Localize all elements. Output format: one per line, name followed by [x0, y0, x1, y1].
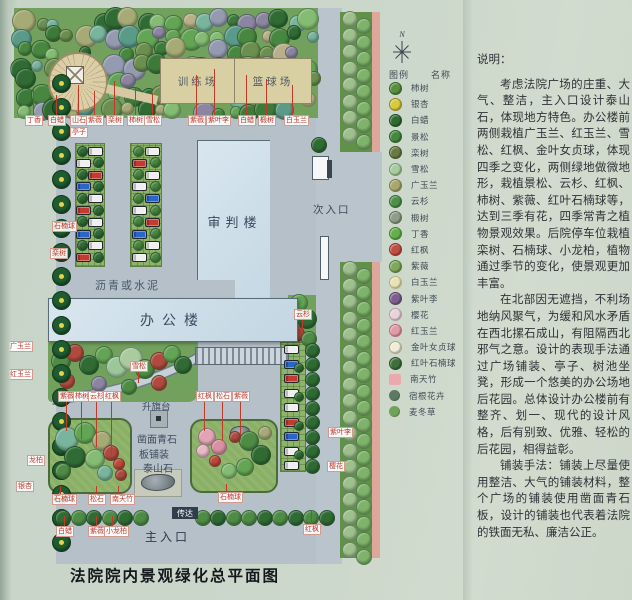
plant-callout: 银杏: [16, 481, 34, 492]
tree: [305, 444, 320, 459]
tree: [294, 392, 304, 402]
plant-callout: 南天竹: [110, 494, 135, 505]
plant-callout: 雪松: [130, 361, 148, 372]
callout-leader-line: [240, 401, 241, 435]
main-entrance-label: 主入口: [145, 528, 190, 545]
tree: [311, 137, 327, 153]
tree: [288, 510, 304, 526]
callout-leader-line: [302, 319, 303, 333]
legend-plant-icon: [389, 179, 402, 192]
tree: [194, 31, 210, 47]
flag-platform-label: 升旗台: [142, 399, 171, 413]
callout-leader-line: [311, 510, 312, 524]
parked-car: [284, 345, 299, 354]
tree: [356, 384, 372, 400]
tree: [150, 228, 161, 239]
tree: [236, 458, 254, 476]
callout-leader-line: [118, 486, 119, 494]
tree: [133, 240, 144, 251]
tree: [133, 216, 144, 227]
legend-plant-icon: [389, 114, 402, 127]
callout-leader-line: [81, 401, 82, 439]
callout-leader-line: [96, 516, 97, 526]
tree: [196, 444, 210, 458]
tree: [294, 421, 304, 431]
office-building-label: 办公楼: [140, 310, 206, 330]
plant-callout: 红枫: [103, 391, 121, 402]
legend-plant-icon: [389, 227, 402, 240]
north-arrow: N: [387, 30, 417, 70]
tree: [356, 367, 372, 383]
parked-car: [88, 241, 103, 250]
legend-plant-icon: [389, 98, 402, 111]
tree: [305, 357, 320, 372]
plant-callout: 柿树: [127, 115, 145, 126]
tree: [77, 216, 88, 227]
tree: [356, 318, 372, 334]
legend-plant-icon: [389, 390, 400, 401]
plant-callout: 松石: [88, 494, 106, 505]
parked-car: [284, 403, 299, 412]
legend-plant-icon: [389, 163, 402, 176]
tree: [258, 426, 272, 440]
legend-plant-name: 雪松: [411, 163, 429, 175]
plant-callout: 白蜡: [238, 115, 256, 126]
legend-plant-icon: [389, 357, 402, 370]
callout-leader-line: [196, 75, 197, 115]
tree: [356, 499, 372, 515]
plant-callout: 紫薇: [232, 391, 250, 402]
tree: [133, 193, 144, 204]
east-belt-edge-bottom: [372, 262, 380, 558]
north-label: N: [387, 30, 417, 39]
legend-plant-icon: [389, 130, 402, 143]
paving-note: 沥青或水泥: [95, 277, 160, 293]
tree: [102, 510, 118, 526]
tree: [356, 51, 372, 67]
tree: [257, 510, 273, 526]
parked-car: [88, 171, 103, 180]
description-paragraph-1: 考虑法院广场的庄重、大气、整洁，主入口设计泰山石，体现地方特色。办公楼前两侧栽植…: [477, 77, 630, 293]
legend-plant-icon: [389, 243, 402, 256]
plant-callout: 亭子: [70, 127, 88, 138]
parked-car: [284, 461, 299, 470]
callout-leader-line: [94, 91, 95, 115]
boundary-tree: [52, 267, 71, 286]
tree: [77, 193, 88, 204]
legend-plant-name: 银杏: [411, 98, 429, 110]
reception-box: 传达: [172, 507, 198, 519]
parked-car: [145, 218, 160, 227]
site-plan: 训练场 篮球场 审判楼 办公楼 传达 沥青或水泥 次入口 主入口 升旗台 凿面青…: [8, 8, 390, 564]
callout-leader-line: [138, 371, 139, 383]
training-ground: 训练场: [160, 58, 236, 104]
tree: [294, 363, 304, 373]
boundary-tree: [52, 146, 71, 165]
parked-car: [145, 194, 160, 203]
tree: [91, 376, 107, 392]
tree: [165, 37, 186, 58]
parked-car: [132, 206, 147, 215]
legend-plant-name: 宿根花卉: [409, 390, 445, 402]
legend-plant-icon: [389, 82, 402, 95]
legend-plant-name: 紫薇: [411, 260, 429, 272]
tree: [77, 169, 88, 180]
tree: [77, 146, 88, 157]
legend-plant-icon: [389, 211, 402, 224]
tree: [268, 9, 287, 28]
tree: [356, 134, 372, 150]
legend-plant-name: 樱花: [411, 309, 429, 321]
parked-car: [132, 182, 147, 191]
tree: [305, 386, 320, 401]
legend-plant-icon: [389, 195, 402, 208]
callout-leader-line: [56, 95, 57, 115]
compass-icon: [389, 39, 415, 65]
boundary-tree: [52, 364, 71, 383]
legend-plant-icon: [389, 406, 400, 417]
parked-car: [132, 230, 147, 239]
legend-plant-name: 丁香: [411, 228, 429, 240]
plant-callout: 樱花: [327, 461, 345, 472]
legend-plant-name: 白蜡: [411, 114, 429, 126]
tree: [151, 375, 167, 391]
flag-pole-base: [156, 416, 161, 421]
plant-callout: 白玉兰: [284, 115, 309, 126]
boundary-tree: [52, 74, 71, 93]
tree: [15, 68, 36, 89]
tree: [356, 268, 372, 284]
secondary-gate-pillar: [327, 160, 332, 178]
legend-plant-name: 广玉兰: [411, 179, 438, 191]
plaza-paving-label-2: 板铺装: [139, 446, 169, 461]
plant-callout: 龙柏: [27, 455, 45, 466]
callout-leader-line: [78, 85, 79, 115]
callout-leader-line: [135, 87, 136, 115]
callout-leader-line: [222, 401, 223, 441]
tree: [305, 459, 320, 474]
parked-car: [145, 147, 160, 156]
legend-plant-name: 柿树: [411, 82, 429, 94]
legend-plant-name: 云杉: [411, 195, 429, 207]
tree: [59, 29, 72, 42]
tree: [356, 101, 372, 117]
office-building: 办公楼: [48, 298, 298, 342]
reception-label: 传达: [177, 508, 193, 519]
tree: [133, 510, 149, 526]
parked-car: [76, 230, 91, 239]
callout-leader-line: [226, 484, 227, 492]
tree: [356, 84, 372, 100]
tree: [211, 439, 227, 455]
callout-leader-line: [33, 89, 34, 115]
tree: [305, 343, 320, 358]
plant-callout: 小龙柏: [104, 526, 129, 537]
parked-car: [76, 206, 91, 215]
plant-callout: 白蜡: [56, 526, 74, 537]
tree: [210, 510, 226, 526]
plant-callout: 红枫: [196, 391, 214, 402]
tree: [251, 445, 271, 465]
tree: [226, 510, 242, 526]
legend-plant-icon: [389, 292, 402, 305]
tree: [86, 510, 102, 526]
tree: [307, 31, 319, 43]
tree: [77, 240, 88, 251]
plant-callout: 云杉: [294, 309, 312, 320]
legend-plant-name: 白玉兰: [411, 276, 438, 288]
tree: [356, 334, 372, 350]
tree: [93, 252, 104, 263]
parked-car: [145, 241, 160, 250]
tree: [150, 205, 161, 216]
callout-leader-line: [246, 75, 247, 115]
parked-car: [132, 253, 147, 262]
callout-leader-line: [112, 516, 113, 526]
parked-car: [284, 374, 299, 383]
parked-car: [145, 171, 160, 180]
plant-callout: 石楠球: [52, 494, 77, 505]
parked-car: [284, 432, 299, 441]
tree: [209, 455, 221, 467]
legend-plant-icon: [389, 146, 402, 159]
tree: [55, 463, 71, 479]
description-panel: 说明： 考虑法院广场的庄重、大气、整洁，主入口设计泰山石，体现地方特色。办公楼前…: [477, 52, 630, 541]
boundary-tree: [52, 291, 71, 310]
plant-callout: 石楠球: [218, 492, 243, 503]
tree: [356, 466, 372, 482]
boundary-tree: [52, 316, 71, 335]
tree: [209, 8, 228, 27]
legend-plant-icon: [389, 276, 402, 289]
tree: [356, 417, 372, 433]
legend-plant-name: 紫叶李: [411, 293, 438, 305]
tree: [356, 35, 372, 51]
callout-leader-line: [214, 69, 215, 115]
tree: [356, 532, 372, 548]
parked-car: [76, 159, 91, 168]
tree: [55, 510, 71, 526]
east-road: [316, 8, 342, 564]
tree: [150, 252, 161, 263]
tree: [150, 181, 161, 192]
legend-plant-name: 红叶石楠球: [411, 357, 456, 369]
tree: [97, 465, 113, 481]
description-heading: 说明：: [477, 52, 630, 69]
tree: [133, 146, 144, 157]
tree: [305, 415, 320, 430]
plant-callout: 石楠球: [52, 221, 77, 232]
plant-callout: 雪松: [144, 115, 162, 126]
legend-plant-icon: [389, 341, 402, 354]
legend-plant-name: 栾树: [411, 147, 429, 159]
secondary-gate-barrier: [320, 236, 329, 280]
callout-leader-line: [114, 81, 115, 115]
tree: [305, 430, 320, 445]
tree: [93, 157, 104, 168]
plaza-paving-label-1: 凿面青石: [137, 431, 177, 446]
boundary-tree: [52, 340, 71, 359]
legend-plant-name: 红枫: [411, 244, 429, 256]
tree: [305, 401, 320, 416]
plant-callout: 紫薇: [188, 115, 206, 126]
trial-building-label: 审判楼: [207, 212, 261, 231]
legend-plant-name: 红玉兰: [411, 325, 438, 337]
tree: [356, 301, 372, 317]
callout-leader-line: [60, 486, 61, 494]
parked-car: [76, 253, 91, 262]
legend-plant-icon: [389, 374, 401, 385]
tree: [174, 356, 192, 374]
tree: [121, 102, 134, 115]
tree: [356, 351, 372, 367]
boundary-tree: [52, 98, 71, 117]
plant-callout: 白蜡: [48, 115, 66, 126]
plant-callout: 栾树: [50, 248, 68, 259]
tree: [133, 169, 144, 180]
tree: [305, 372, 320, 387]
plant-callout: 松石: [214, 391, 232, 402]
stone-label: 泰山石: [143, 460, 173, 475]
drawing-title: 法院院内景观绿化总平面图: [70, 564, 280, 586]
legend-plant-icon: [389, 260, 402, 273]
tree: [150, 157, 161, 168]
callout-leader-line: [96, 401, 97, 447]
legend-plant-icon: [389, 324, 402, 337]
tree: [356, 400, 372, 416]
plant-callout: 红枫: [303, 524, 321, 535]
description-paragraph-2: 在北部因无遮挡，不利场地纳风聚气，为缓和风水矛盾在西北摞石成山，有阻隔西北邪气之…: [477, 292, 630, 458]
callout-leader-line: [66, 401, 67, 431]
tree: [93, 205, 104, 216]
parked-car: [88, 218, 103, 227]
tree: [241, 510, 257, 526]
boundary-tree: [52, 195, 71, 214]
plant-callout: 栾树: [106, 115, 124, 126]
callout-leader-line: [96, 486, 97, 494]
parked-car: [132, 159, 147, 168]
plant-callout: 紫叶李: [206, 115, 231, 126]
tree: [356, 450, 372, 466]
tree: [117, 510, 133, 526]
plant-callout: 丁香: [25, 115, 43, 126]
tree: [93, 181, 104, 192]
east-belt-edge-top: [372, 12, 380, 152]
legend-plant-icon: [389, 308, 402, 321]
legend-plant-name: 景松: [411, 131, 429, 143]
tree: [93, 228, 104, 239]
tree: [294, 450, 304, 460]
boundary-tree: [52, 170, 71, 189]
parked-car: [88, 147, 103, 156]
tree: [356, 483, 372, 499]
callout-leader-line: [292, 85, 293, 115]
page-crease: [463, 0, 473, 600]
tree: [356, 68, 372, 84]
callout-leader-line: [152, 93, 153, 115]
page-left-edge: [0, 0, 12, 600]
secondary-entrance-label: 次入口: [313, 202, 351, 217]
parked-car: [88, 194, 103, 203]
plant-callout: 椴树: [258, 115, 276, 126]
legend-plant-name: 麦冬草: [409, 406, 436, 418]
tree: [71, 510, 87, 526]
tree: [121, 379, 137, 395]
callout-leader-line: [204, 401, 205, 431]
legend-plant-name: 南天竹: [410, 373, 437, 385]
tree: [152, 26, 166, 40]
tree: [208, 39, 228, 59]
plant-callout: 紫薇: [86, 115, 104, 126]
training-ground-label: 训练场: [178, 74, 219, 89]
plant-callout: 紫叶李: [328, 427, 353, 438]
parked-car: [76, 182, 91, 191]
tree: [356, 516, 372, 532]
basketball-court-label: 篮球场: [253, 74, 294, 89]
callout-leader-line: [111, 401, 112, 456]
tree: [356, 18, 372, 34]
tree: [356, 117, 372, 133]
callout-leader-line: [266, 79, 267, 115]
tree: [356, 285, 372, 301]
legend-plant-name: 椴树: [411, 212, 429, 224]
pergola-steps: [195, 347, 289, 365]
tree: [18, 41, 33, 56]
description-paragraph-3: 铺装手法：铺装上尽量使用整洁、大气的铺装材料，整个广场的铺装使用凿面青石板，设计…: [477, 458, 630, 541]
callout-leader-line: [64, 516, 65, 526]
tree: [221, 463, 237, 479]
tree: [115, 469, 127, 481]
legend-plant-name: 金叶女贞球: [411, 341, 456, 353]
tree: [272, 510, 288, 526]
tree: [356, 433, 372, 449]
tree: [356, 549, 372, 565]
